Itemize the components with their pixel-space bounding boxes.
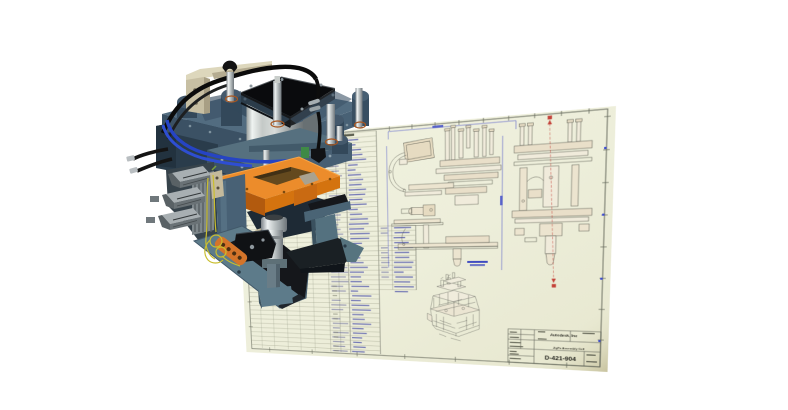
svg-text:Autodesk, Inc: Autodesk, Inc bbox=[550, 332, 578, 338]
